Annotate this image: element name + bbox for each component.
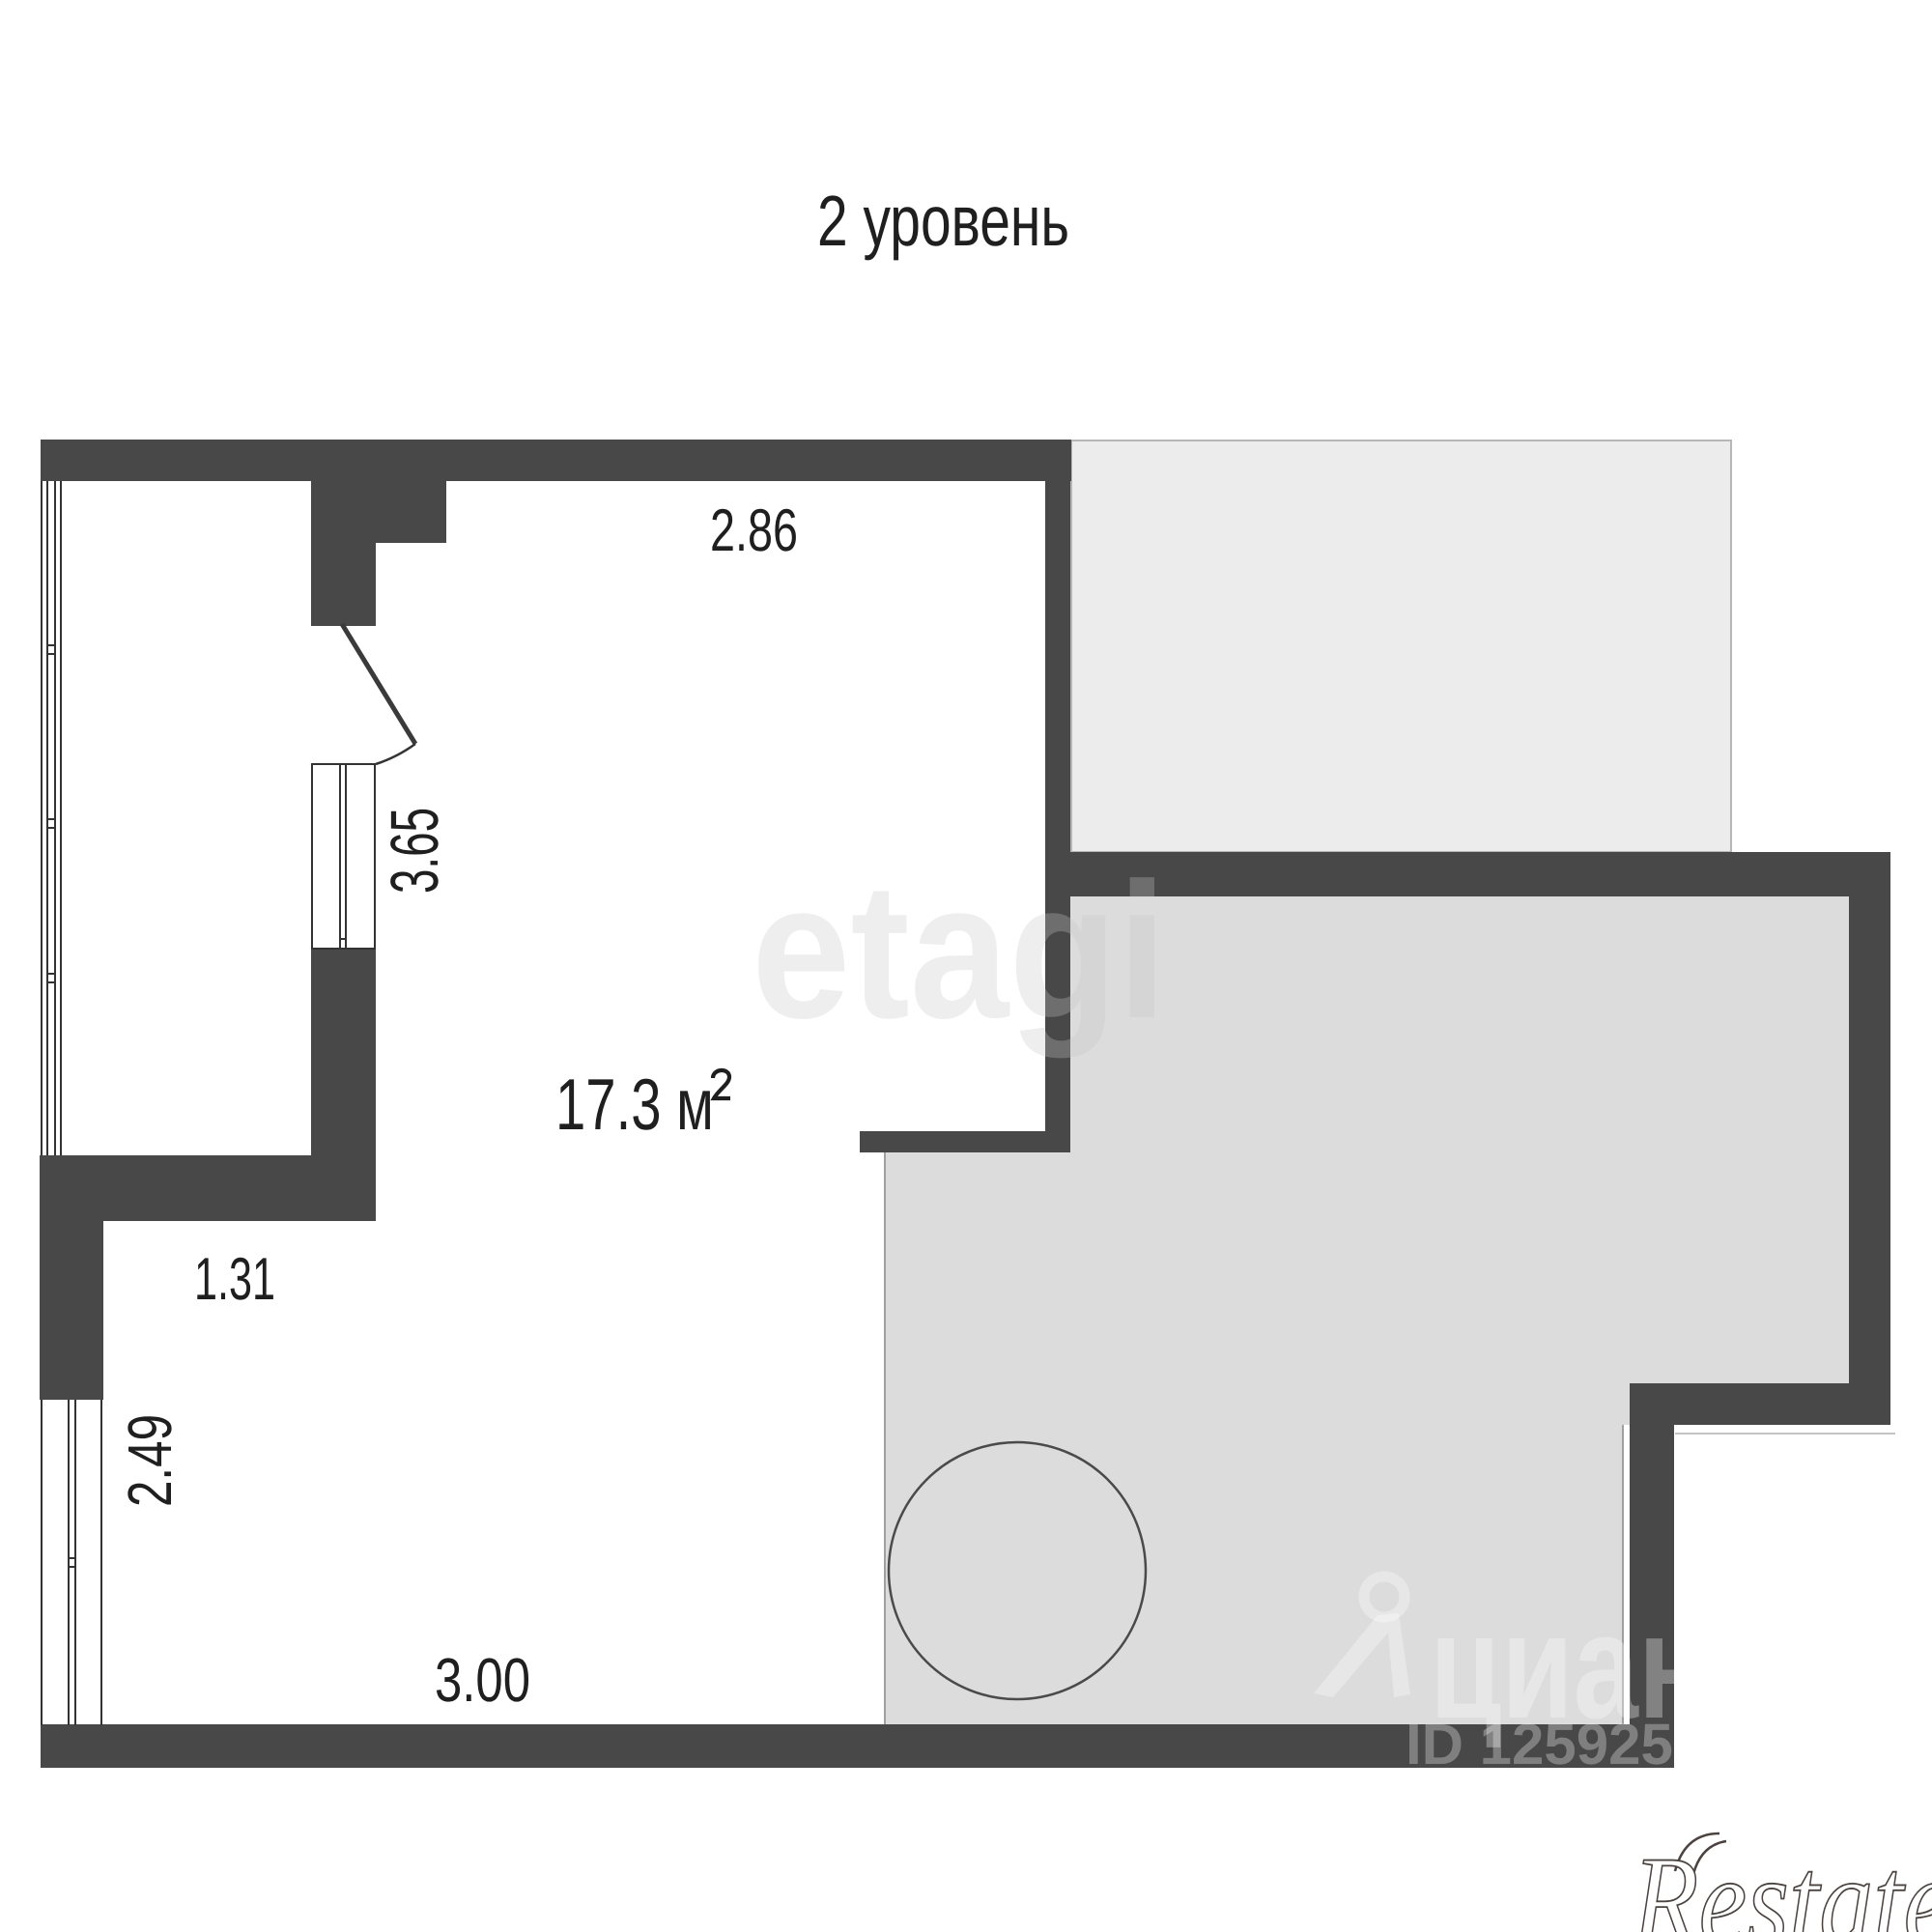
- svg-text:17.3 м: 17.3 м: [555, 1064, 714, 1145]
- svg-text:etagi: etagi: [752, 843, 1167, 1059]
- svg-text:1.31: 1.31: [194, 1246, 275, 1313]
- svg-text:2 уровень: 2 уровень: [817, 181, 1069, 261]
- svg-text:3.00: 3.00: [435, 1645, 530, 1715]
- svg-text:3.65: 3.65: [377, 808, 452, 894]
- svg-text:2.49: 2.49: [115, 1414, 185, 1507]
- svg-text:ID 1259255: ID 1259255: [1406, 1712, 1705, 1776]
- svg-text:2.86: 2.86: [710, 497, 798, 564]
- svg-text:Restate: Restate: [1632, 1830, 1932, 1932]
